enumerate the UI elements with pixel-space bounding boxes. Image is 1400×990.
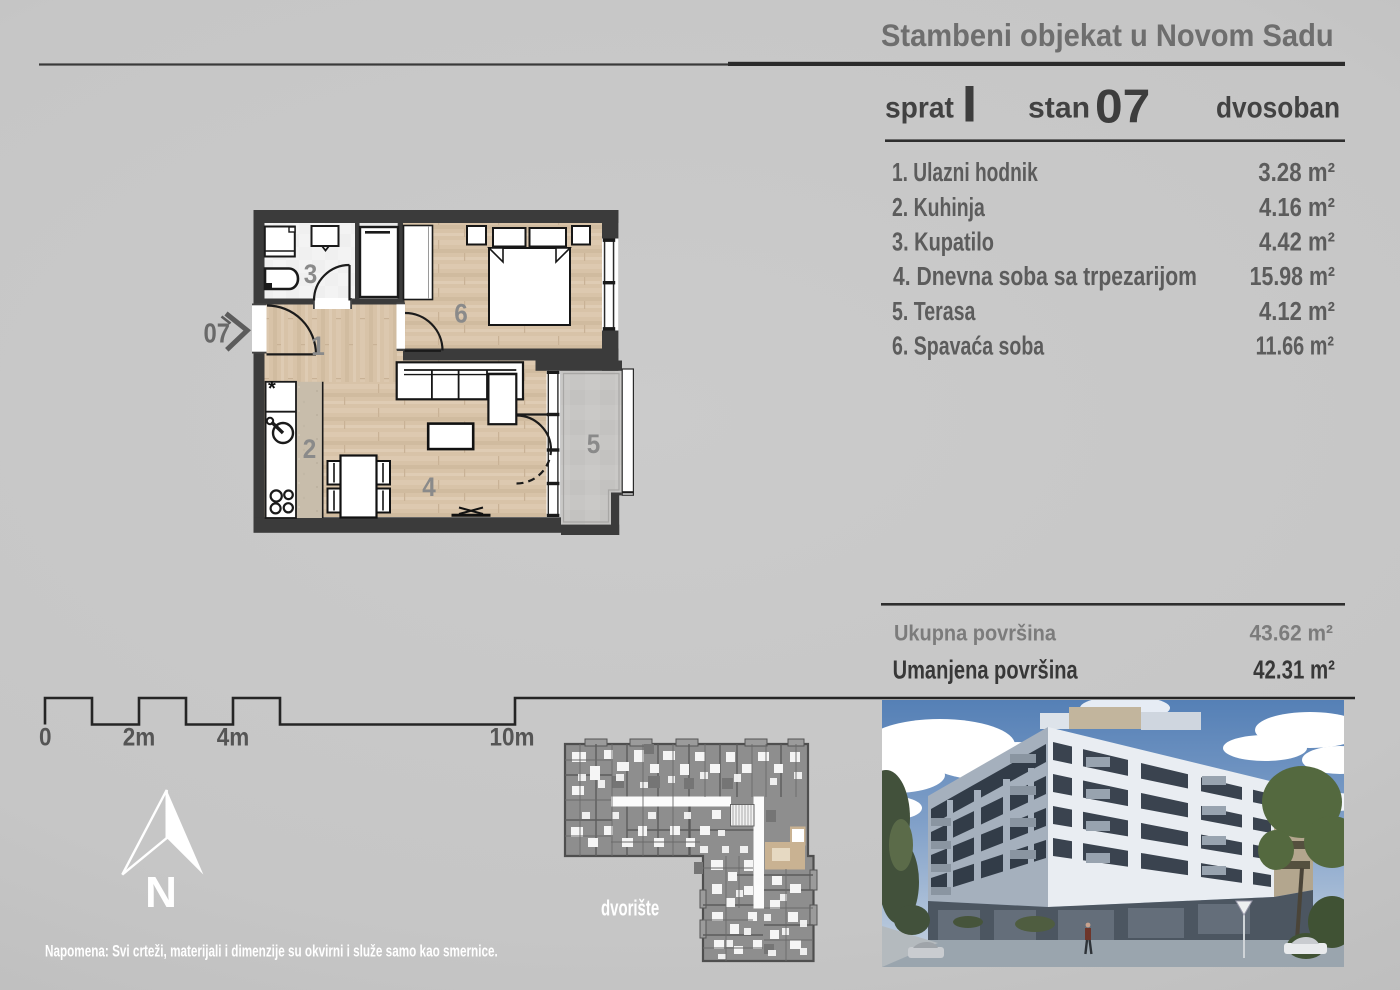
svg-text:4.16 m²: 4.16 m² [1259, 193, 1335, 222]
svg-text:3.28 m²: 3.28 m² [1258, 159, 1335, 188]
svg-text:2. Kuhinja: 2. Kuhinja [892, 192, 985, 221]
svg-text:4.12 m²: 4.12 m² [1259, 297, 1335, 326]
svg-text:4. Dnevna soba sa trpezarijom: 4. Dnevna soba sa trpezarijom [893, 263, 1197, 292]
svg-text:stan: stan [1028, 92, 1090, 125]
svg-text:sprat: sprat [885, 92, 954, 125]
svg-text:5: 5 [587, 430, 601, 459]
svg-text:1: 1 [311, 332, 325, 361]
svg-text:dvosoban: dvosoban [1216, 90, 1340, 124]
svg-text:42.31 m²: 42.31 m² [1253, 655, 1335, 684]
svg-text:6. Spavaća soba: 6. Spavaća soba [892, 331, 1044, 360]
svg-text:N: N [145, 868, 177, 917]
svg-text:Napomena: Svi crteži, materija: Napomena: Svi crteži, materijali i dimen… [45, 943, 498, 962]
svg-text:4.42 m²: 4.42 m² [1259, 228, 1335, 257]
svg-text:43.62 m²: 43.62 m² [1250, 620, 1333, 646]
svg-text:5. Terasa: 5. Terasa [892, 296, 976, 325]
svg-text:2: 2 [303, 435, 317, 464]
svg-text:Umanjena površina: Umanjena površina [893, 655, 1078, 684]
svg-text:4m: 4m [217, 723, 250, 751]
svg-text:1. Ulazni hodnik: 1. Ulazni hodnik [892, 157, 1038, 187]
svg-text:15.98 m²: 15.98 m² [1250, 262, 1335, 292]
svg-text:3. Kupatilo: 3. Kupatilo [892, 227, 994, 256]
svg-text:6: 6 [454, 299, 468, 328]
svg-text:11.66 m²: 11.66 m² [1256, 331, 1335, 360]
svg-text:0: 0 [39, 723, 52, 751]
svg-text:*: * [268, 378, 276, 400]
svg-text:10m: 10m [489, 723, 534, 751]
svg-text:4: 4 [422, 473, 436, 502]
svg-text:dvorište: dvorište [601, 896, 659, 921]
svg-text:07: 07 [1095, 81, 1150, 133]
svg-text:3: 3 [304, 260, 318, 289]
svg-text:Ukupna površina: Ukupna površina [894, 620, 1056, 645]
svg-text:2m: 2m [123, 723, 156, 751]
svg-text:Stambeni objekat u Novom Sadu: Stambeni objekat u Novom Sadu [881, 19, 1334, 53]
